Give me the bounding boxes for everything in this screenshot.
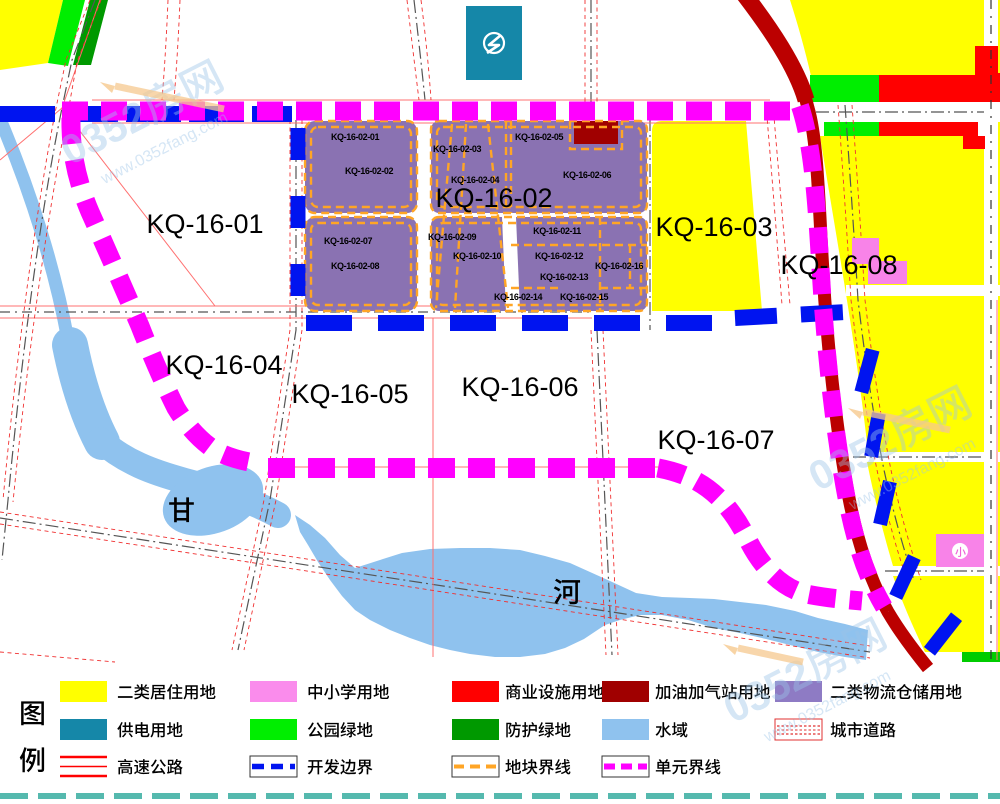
svg-text:KQ-16-02-09: KQ-16-02-09	[428, 232, 477, 242]
svg-text:KQ-16-02-07: KQ-16-02-07	[324, 236, 373, 246]
svg-text:KQ-16-02-12: KQ-16-02-12	[535, 251, 584, 261]
svg-text:KQ-16-08: KQ-16-08	[780, 250, 897, 280]
svg-text:KQ-16-02-15: KQ-16-02-15	[560, 292, 609, 302]
svg-text:KQ-16-07: KQ-16-07	[657, 425, 774, 455]
svg-text:KQ-16-02-04: KQ-16-02-04	[451, 175, 500, 185]
svg-text:KQ-16-06: KQ-16-06	[461, 372, 578, 402]
svg-text:KQ-16-02: KQ-16-02	[435, 183, 552, 213]
svg-text:KQ-16-02-11: KQ-16-02-11	[533, 226, 581, 236]
svg-text:KQ-16-02-02: KQ-16-02-02	[345, 166, 394, 176]
svg-text:KQ-16-02-14: KQ-16-02-14	[494, 292, 543, 302]
svg-text:KQ-16-04: KQ-16-04	[165, 350, 282, 380]
svg-text:KQ-16-02-06: KQ-16-02-06	[563, 170, 612, 180]
svg-text:KQ-16-01: KQ-16-01	[146, 209, 263, 239]
svg-text:KQ-16-02-16: KQ-16-02-16	[595, 261, 644, 271]
svg-text:KQ-16-05: KQ-16-05	[291, 379, 408, 409]
svg-text:KQ-16-02-03: KQ-16-02-03	[433, 144, 482, 154]
svg-text:KQ-16-02-01: KQ-16-02-01	[331, 132, 380, 142]
svg-text:KQ-16-03: KQ-16-03	[655, 212, 772, 242]
svg-text:KQ-16-02-13: KQ-16-02-13	[540, 272, 589, 282]
svg-text:KQ-16-02-05: KQ-16-02-05	[515, 132, 564, 142]
svg-text:KQ-16-02-10: KQ-16-02-10	[453, 251, 502, 261]
svg-text:KQ-16-02-08: KQ-16-02-08	[331, 261, 380, 271]
